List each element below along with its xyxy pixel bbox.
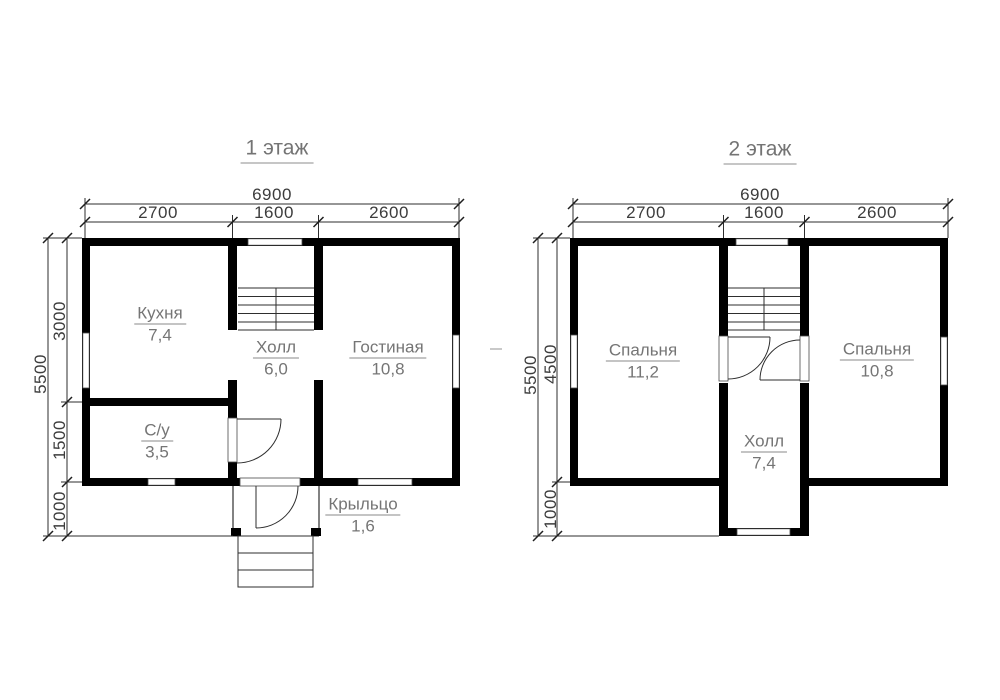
room-name: Крыльцо [325, 495, 400, 516]
floor2-dim-total-height: 5500 [521, 355, 541, 395]
floor1-dim-height-seg2: 1500 [50, 420, 70, 460]
room-area: 6,0 [253, 360, 299, 379]
door-arc [237, 419, 281, 463]
room-label-hall-f1: Холл 6,0 [253, 338, 299, 379]
floor1-title: 1 этаж [241, 137, 314, 164]
window-right-bedroom [941, 337, 947, 385]
floor1-dim-total-width: 6900 [252, 185, 292, 205]
room-name: Холл [741, 432, 787, 453]
floor2-dim-height-seg2: 1000 [541, 489, 561, 529]
floor2-door-bedroom-right [760, 336, 809, 381]
floor2-dim-total-width: 6900 [740, 185, 780, 205]
room-name: Спальня [840, 340, 914, 361]
window-hall-extension [737, 529, 790, 535]
floor2-stairs [728, 288, 800, 330]
room-label-bedroom-left: Спальня 11,2 [606, 341, 680, 382]
room-area: 10,8 [840, 362, 914, 381]
room-label-kitchen: Кухня 7,4 [134, 304, 186, 345]
window-bottom-bathroom [148, 479, 175, 485]
door-arc [256, 486, 298, 528]
floor1-dim-total-height: 5500 [31, 354, 51, 394]
floor2-dim-width-seg1: 2700 [626, 203, 666, 223]
floor1-stairs [238, 288, 314, 330]
room-name: Холл [253, 338, 299, 359]
floor1-dim-width-seg2: 1600 [254, 203, 294, 223]
window-right-living [453, 335, 459, 388]
floor2-dim-height-seg1: 4500 [541, 344, 561, 384]
floor1-dim-height-seg3: 1000 [50, 491, 70, 531]
floor2-windows [571, 239, 947, 535]
floor1-dim-height-seg1: 3000 [50, 301, 70, 341]
door-arc [760, 340, 800, 380]
floor1-plan [43, 198, 464, 587]
room-label-bathroom: С/у 3,5 [141, 421, 173, 462]
room-area: 7,4 [134, 326, 186, 345]
room-name: Спальня [606, 341, 680, 362]
floor1-door-entrance [240, 478, 300, 528]
floor1-dim-width-seg3: 2600 [369, 203, 409, 223]
floor-plan-page: 1 этаж 6900 2700 1600 2600 5500 3000 150… [0, 0, 1000, 700]
room-label-porch: Крыльцо 1,6 [325, 495, 400, 536]
door-arc [728, 337, 770, 379]
room-label-bedroom-right: Спальня 10,8 [840, 340, 914, 381]
floor2-title: 2 этаж [724, 138, 797, 165]
floor1-porch [231, 486, 321, 587]
floor1-dim-width-seg1: 2700 [138, 203, 178, 223]
room-name: С/у [141, 421, 173, 442]
room-name: Гостиная [349, 338, 426, 359]
room-label-hall-f2: Холл 7,4 [741, 432, 787, 473]
room-area: 3,5 [141, 443, 173, 462]
floor1-door-bathroom [228, 418, 281, 463]
window-left-bedroom [571, 335, 577, 388]
separator-dash [490, 348, 502, 350]
room-area: 7,4 [741, 454, 787, 473]
window-bottom-living [358, 479, 412, 485]
window-left-kitchen [83, 333, 89, 388]
room-area: 1,6 [325, 517, 400, 536]
room-label-living: Гостиная 10,8 [349, 338, 426, 379]
room-area: 10,8 [349, 360, 426, 379]
floor2-dim-width-seg2: 1600 [744, 203, 784, 223]
porch-steps [238, 536, 313, 587]
floor2-door-bedroom-left [719, 336, 770, 381]
room-name: Кухня [134, 304, 186, 325]
floor2-dim-width-seg3: 2600 [857, 203, 897, 223]
window-top-stairs [736, 239, 788, 245]
window-top-stairs [248, 239, 302, 245]
room-area: 11,2 [606, 363, 680, 382]
